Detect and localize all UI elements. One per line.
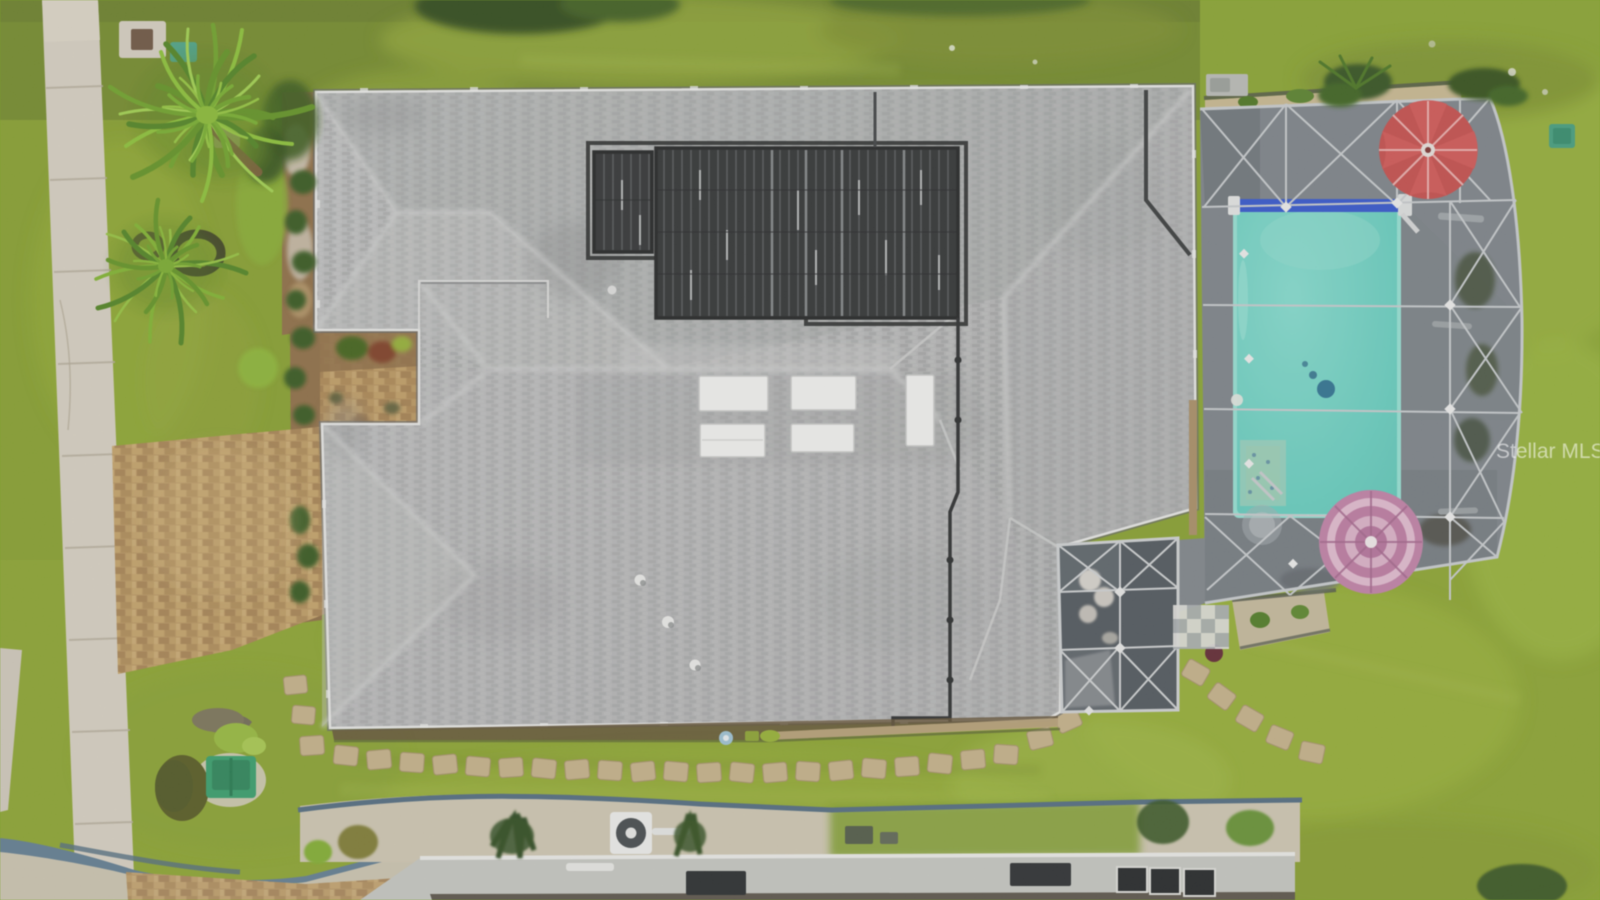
svg-text:Stellar MLS: Stellar MLS [1496,440,1600,463]
